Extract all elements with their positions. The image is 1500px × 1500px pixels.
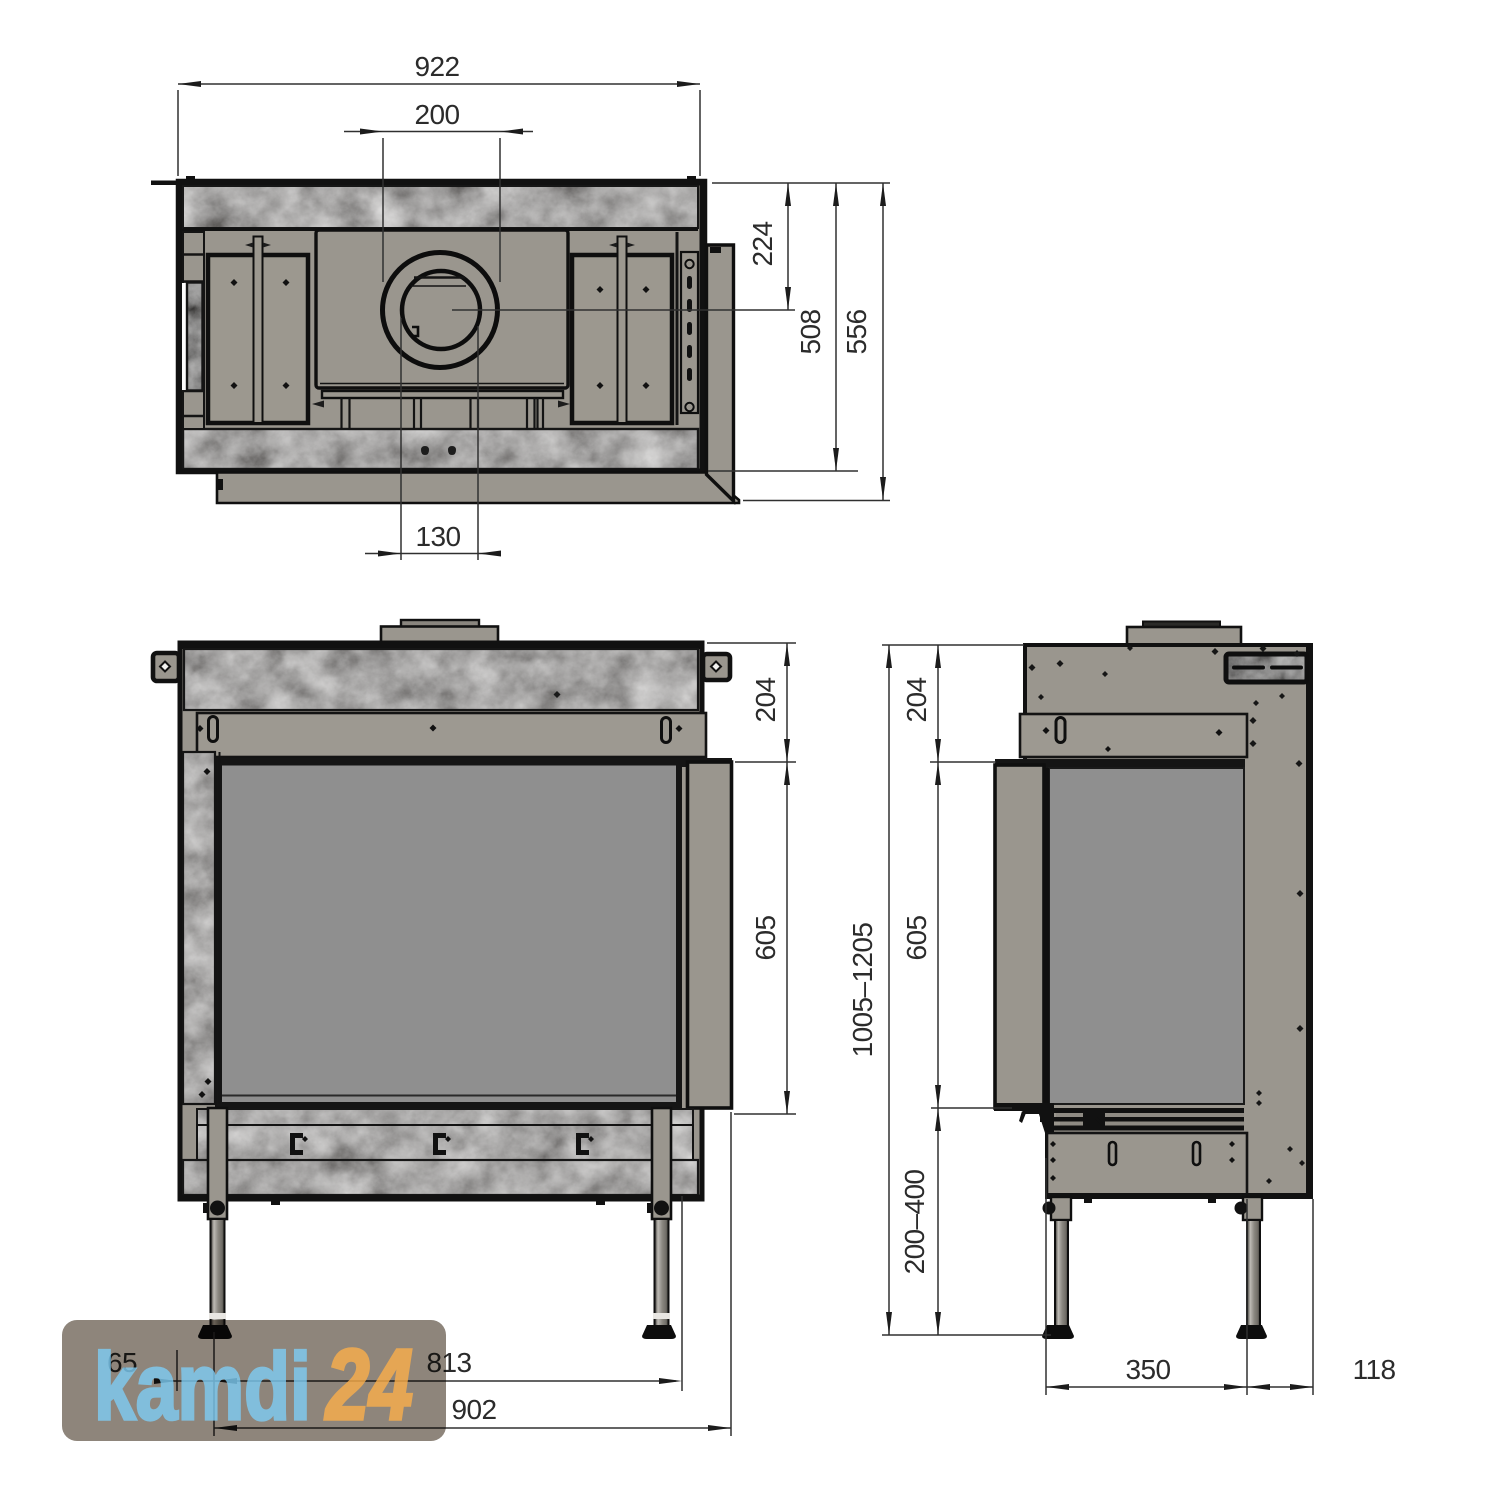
svg-text:224: 224 bbox=[747, 222, 778, 267]
svg-text:902: 902 bbox=[452, 1394, 497, 1425]
svg-text:1005–1205: 1005–1205 bbox=[847, 923, 878, 1058]
svg-text:130: 130 bbox=[416, 521, 461, 552]
svg-text:508: 508 bbox=[795, 310, 826, 355]
svg-text:kamdi: kamdi bbox=[94, 1335, 311, 1440]
svg-text:200–400: 200–400 bbox=[899, 1170, 930, 1275]
svg-text:200: 200 bbox=[415, 99, 460, 130]
svg-text:350: 350 bbox=[1126, 1354, 1171, 1385]
svg-text:204: 204 bbox=[750, 678, 781, 723]
svg-text:204: 204 bbox=[901, 678, 932, 723]
svg-text:556: 556 bbox=[841, 310, 872, 355]
svg-text:605: 605 bbox=[901, 916, 932, 961]
svg-text:118: 118 bbox=[1353, 1354, 1396, 1385]
svg-text:24: 24 bbox=[324, 1330, 412, 1442]
svg-text:922: 922 bbox=[415, 51, 460, 82]
svg-text:605: 605 bbox=[750, 916, 781, 961]
